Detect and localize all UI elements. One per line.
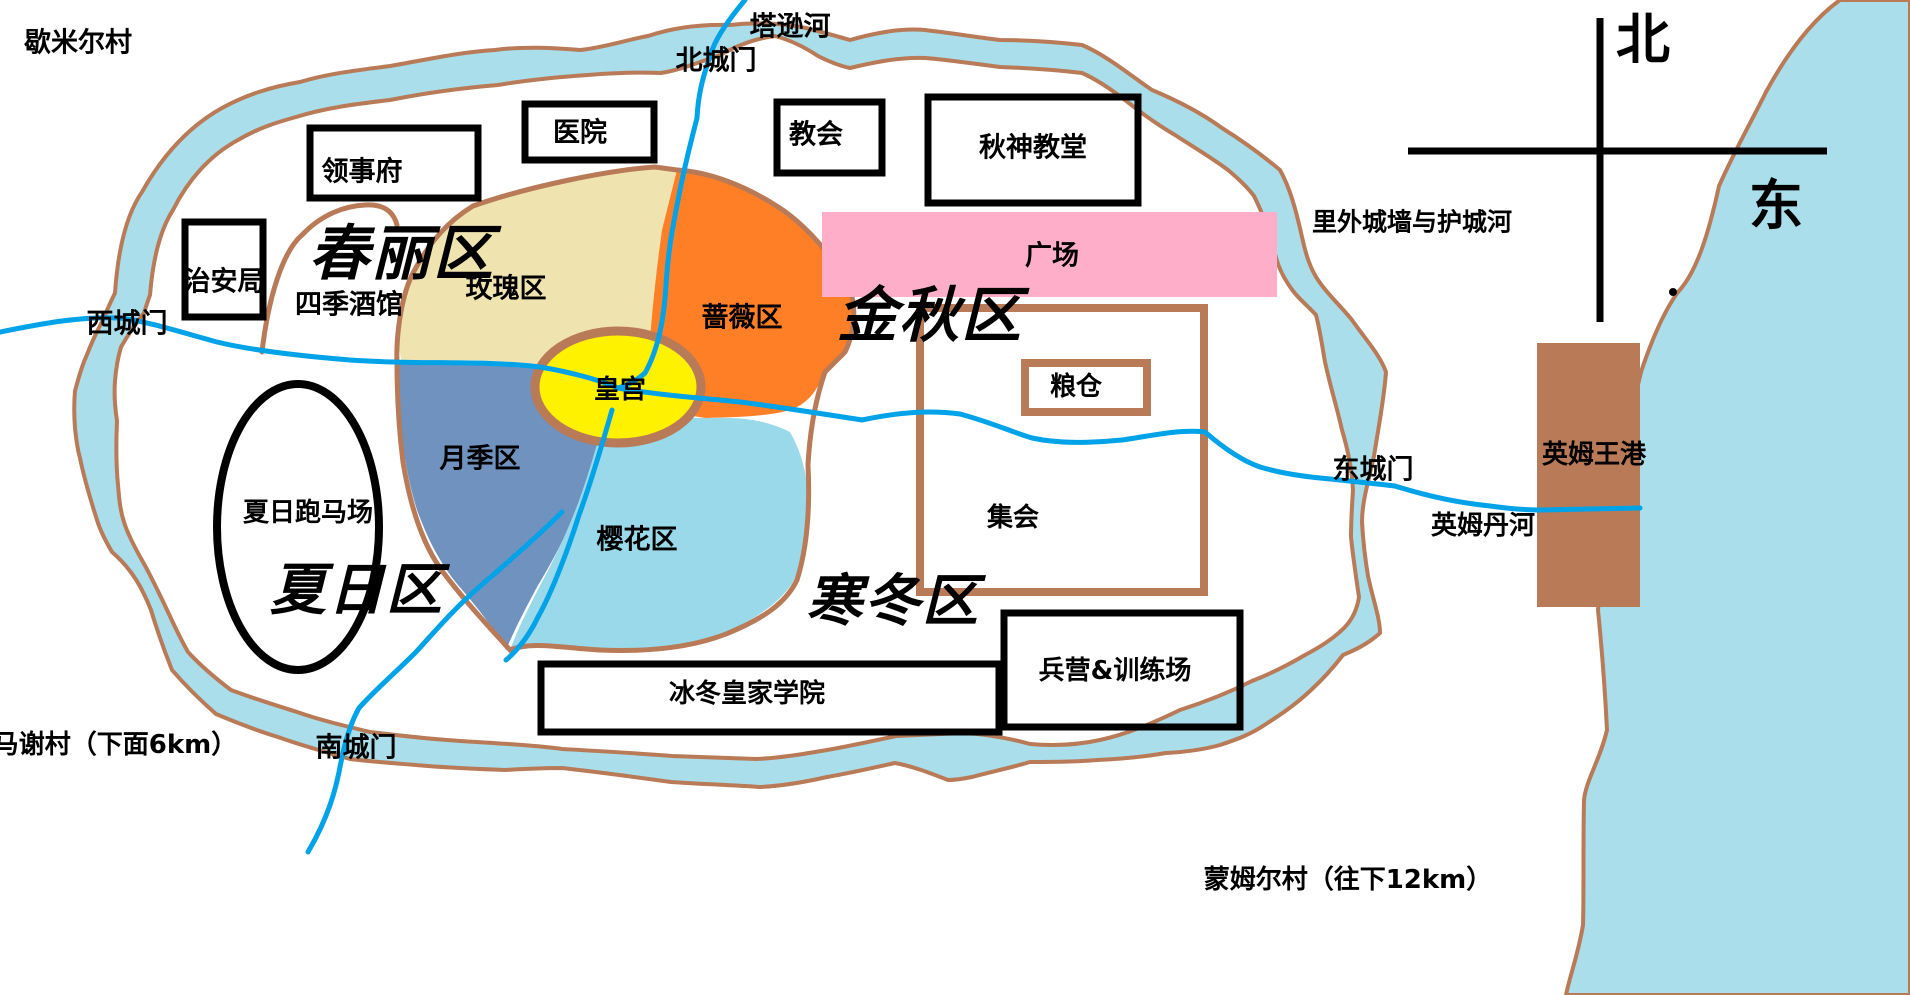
label-compass-north: 北 — [1616, 13, 1670, 67]
label-east-gate: 东城门 — [1333, 457, 1414, 484]
label-walls-and-moat: 里外城墙与护城河 — [1312, 210, 1512, 235]
label-west-gate: 西城门 — [87, 311, 168, 338]
label-assembly: 集会 — [987, 505, 1039, 531]
label-sakura-district: 樱花区 — [597, 527, 678, 554]
label-yingmu-king-port: 英姆王港 — [1542, 442, 1646, 468]
label-four-seasons-tavern: 四季酒馆 — [295, 292, 403, 319]
label-royal-palace: 皇宫 — [594, 377, 646, 403]
stray-dot — [1669, 288, 1677, 296]
label-jinqiu: 金秋区 — [837, 286, 1023, 346]
label-consulate: 领事府 — [322, 159, 403, 186]
label-granary: 粮仓 — [1050, 374, 1102, 400]
label-summer-racecourse: 夏日跑马场 — [243, 500, 373, 526]
label-chunli: 春丽区 — [309, 224, 495, 284]
label-maxie-village: 马谢村（下面6km） — [0, 732, 237, 758]
label-xiemier-village: 歇米尔村 — [24, 30, 132, 57]
label-handong: 寒冬区 — [806, 574, 980, 630]
city-map: 歇米尔村塔逊河北城门西城门东城门南城门领事府医院教会秋神教堂治安局四季酒馆玫瑰区… — [0, 0, 1910, 995]
label-hospital: 医院 — [553, 120, 607, 147]
label-compass-east: 东 — [1749, 179, 1803, 233]
label-yueji-district: 月季区 — [440, 446, 521, 473]
label-xiari: 夏日区 — [270, 563, 444, 619]
label-barracks: 兵营&训练场 — [1039, 658, 1192, 684]
label-yingmudan-river: 英姆丹河 — [1431, 513, 1535, 539]
label-plaza: 广场 — [1025, 243, 1079, 270]
label-church: 教会 — [789, 122, 843, 149]
label-mengmuer-village: 蒙姆尔村（往下12km） — [1204, 867, 1493, 893]
label-tasun-river: 塔逊河 — [750, 14, 831, 41]
label-north-gate: 北城门 — [676, 48, 757, 75]
label-security-bureau: 治安局 — [184, 269, 265, 296]
label-south-gate: 南城门 — [316, 735, 397, 762]
port-area — [1537, 343, 1640, 607]
label-qiangwei-district: 蔷薇区 — [702, 305, 783, 332]
label-autumn-god-church: 秋神教堂 — [979, 135, 1087, 162]
label-royal-academy: 冰冬皇家学院 — [669, 681, 825, 707]
